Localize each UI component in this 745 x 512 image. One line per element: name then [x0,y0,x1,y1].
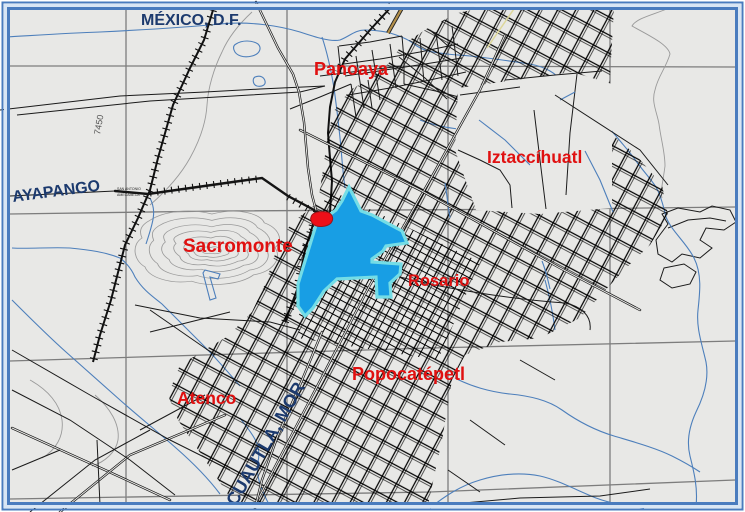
svg-text:AMECAMECA: AMECAMECA [117,193,140,197]
svg-text:SAN ANTONIO: SAN ANTONIO [117,187,141,191]
svg-text:Popocatépetl: Popocatépetl [352,364,465,384]
svg-text:Iztaccíhuatl: Iztaccíhuatl [487,147,582,167]
svg-text:Rosario: Rosario [408,272,469,290]
svg-text:Sacromonte: Sacromonte [183,236,293,257]
svg-text:Panoaya: Panoaya [314,59,389,79]
svg-text:MÉXICO, D.F.: MÉXICO, D.F. [141,10,241,29]
svg-text:Atenco: Atenco [177,388,236,408]
